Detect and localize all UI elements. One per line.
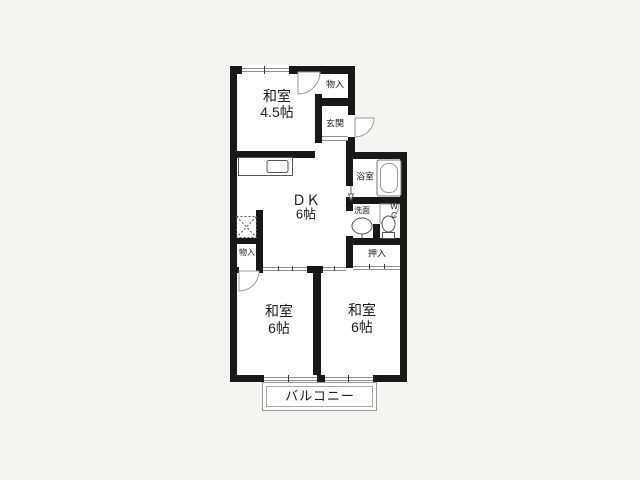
bath-door-mark bbox=[349, 186, 354, 200]
room-label-storage-top: 物入 bbox=[326, 81, 344, 90]
room-label-storage-bottom: 物入 bbox=[239, 249, 255, 257]
kitchen-sink bbox=[267, 161, 288, 173]
door-arc bbox=[298, 72, 320, 94]
door-arc bbox=[239, 271, 259, 291]
floorplan-image: 和室 4.5帖 物入 玄関 浴室 ＤＫ 6帖 洗面 W C 物入 押入 和室 6… bbox=[0, 0, 640, 480]
fixtures-layer bbox=[0, 0, 640, 480]
toilet-tank bbox=[383, 233, 395, 239]
room-label-wc-w: W bbox=[390, 203, 398, 211]
entry-door-arc bbox=[355, 118, 374, 137]
room-label-washitsu-right-name: 和室 bbox=[348, 303, 376, 317]
wash-basin bbox=[352, 218, 372, 234]
room-label-dk-name: ＤＫ bbox=[292, 193, 320, 207]
room-label-genkan: 玄関 bbox=[326, 120, 344, 129]
room-label-bathroom: 浴室 bbox=[356, 173, 374, 182]
room-label-washitsu-4-5-size: 4.5帖 bbox=[260, 105, 293, 119]
balcony-label: バルコニー bbox=[285, 390, 355, 403]
room-label-washitsu-left-name: 和室 bbox=[265, 304, 293, 318]
room-label-dk-size: 6帖 bbox=[296, 208, 316, 221]
room-label-washroom: 洗面 bbox=[354, 207, 370, 215]
room-label-washitsu-right-size: 6帖 bbox=[351, 320, 373, 334]
room-label-oshiire: 押入 bbox=[368, 250, 386, 259]
room-label-washitsu-left-size: 6帖 bbox=[268, 321, 290, 335]
room-label-washitsu-4-5-name: 和室 bbox=[263, 89, 291, 103]
refrigerator-space bbox=[237, 217, 257, 238]
room-label-wc-c: C bbox=[391, 212, 397, 220]
